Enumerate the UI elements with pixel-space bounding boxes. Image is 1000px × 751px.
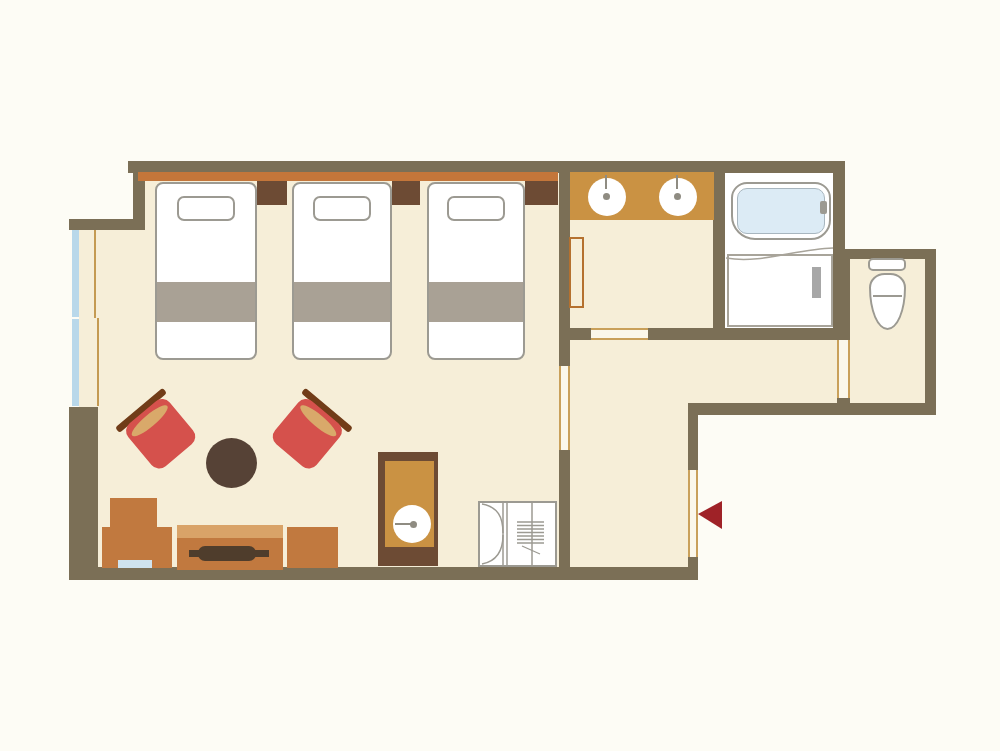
blanket <box>157 282 255 322</box>
wall-toilet-left <box>837 259 850 340</box>
wall-toilet-right <box>925 249 936 415</box>
basin-faucet <box>676 175 678 189</box>
basin-faucet <box>605 175 607 189</box>
wall-bottom <box>69 567 698 580</box>
wall-bedroom-right-lower <box>559 450 570 580</box>
basin-drain <box>674 193 681 200</box>
wall-left-lower <box>69 407 98 580</box>
refrigerator-door-accent <box>118 560 152 568</box>
cabinet <box>287 527 338 568</box>
wall-left-notch <box>69 219 145 230</box>
bathtub-water <box>737 188 825 234</box>
blanket <box>429 282 523 322</box>
closet-detail-icon <box>480 503 555 565</box>
pillow-icon <box>447 196 505 221</box>
window-pane <box>72 230 79 317</box>
corridor-floor <box>570 340 837 403</box>
bedroom-door-opening <box>559 366 570 450</box>
round-table <box>206 438 257 488</box>
tv-board-top <box>177 525 283 538</box>
bathtub-faucet <box>820 201 827 214</box>
tv-stand-right <box>254 550 269 557</box>
wall-washroom-south-a <box>570 328 591 340</box>
nightstand <box>257 181 287 205</box>
toilet-tank <box>868 258 906 271</box>
washroom-door-opening <box>591 328 648 340</box>
tub-deck-curve <box>726 243 833 265</box>
curtain-line <box>94 230 96 318</box>
toilet-door-opening <box>837 340 850 398</box>
nightstand <box>525 181 558 205</box>
headboard-shelf <box>138 172 558 181</box>
bed-2 <box>292 182 392 360</box>
bathtub <box>731 182 831 240</box>
bed-1 <box>155 182 257 360</box>
bifold-closet <box>478 501 557 567</box>
curtain-line <box>97 318 99 406</box>
bed-3 <box>427 182 525 360</box>
floor-plan <box>0 0 1000 751</box>
wall-washroom-south-b <box>648 328 845 340</box>
minibar-drain <box>410 521 417 528</box>
pillow-icon <box>177 196 235 221</box>
entrance-arrow-icon <box>697 500 723 530</box>
tv-icon <box>198 546 256 561</box>
blanket <box>294 282 390 322</box>
window-pane <box>72 319 79 406</box>
bath-door-handle <box>812 267 821 298</box>
pillow-icon <box>313 196 371 221</box>
toilet-seat-line <box>873 295 902 297</box>
wall-entry-stub <box>688 557 698 580</box>
tv-stand-left <box>189 550 200 557</box>
basin-drain <box>603 193 610 200</box>
side-box <box>110 498 157 527</box>
wall-bath-left <box>713 173 725 328</box>
wall-south-right-wing <box>690 403 936 415</box>
wall-entry-upper <box>688 403 698 470</box>
nightstand <box>392 181 420 205</box>
towel-rack-icon <box>569 237 584 308</box>
